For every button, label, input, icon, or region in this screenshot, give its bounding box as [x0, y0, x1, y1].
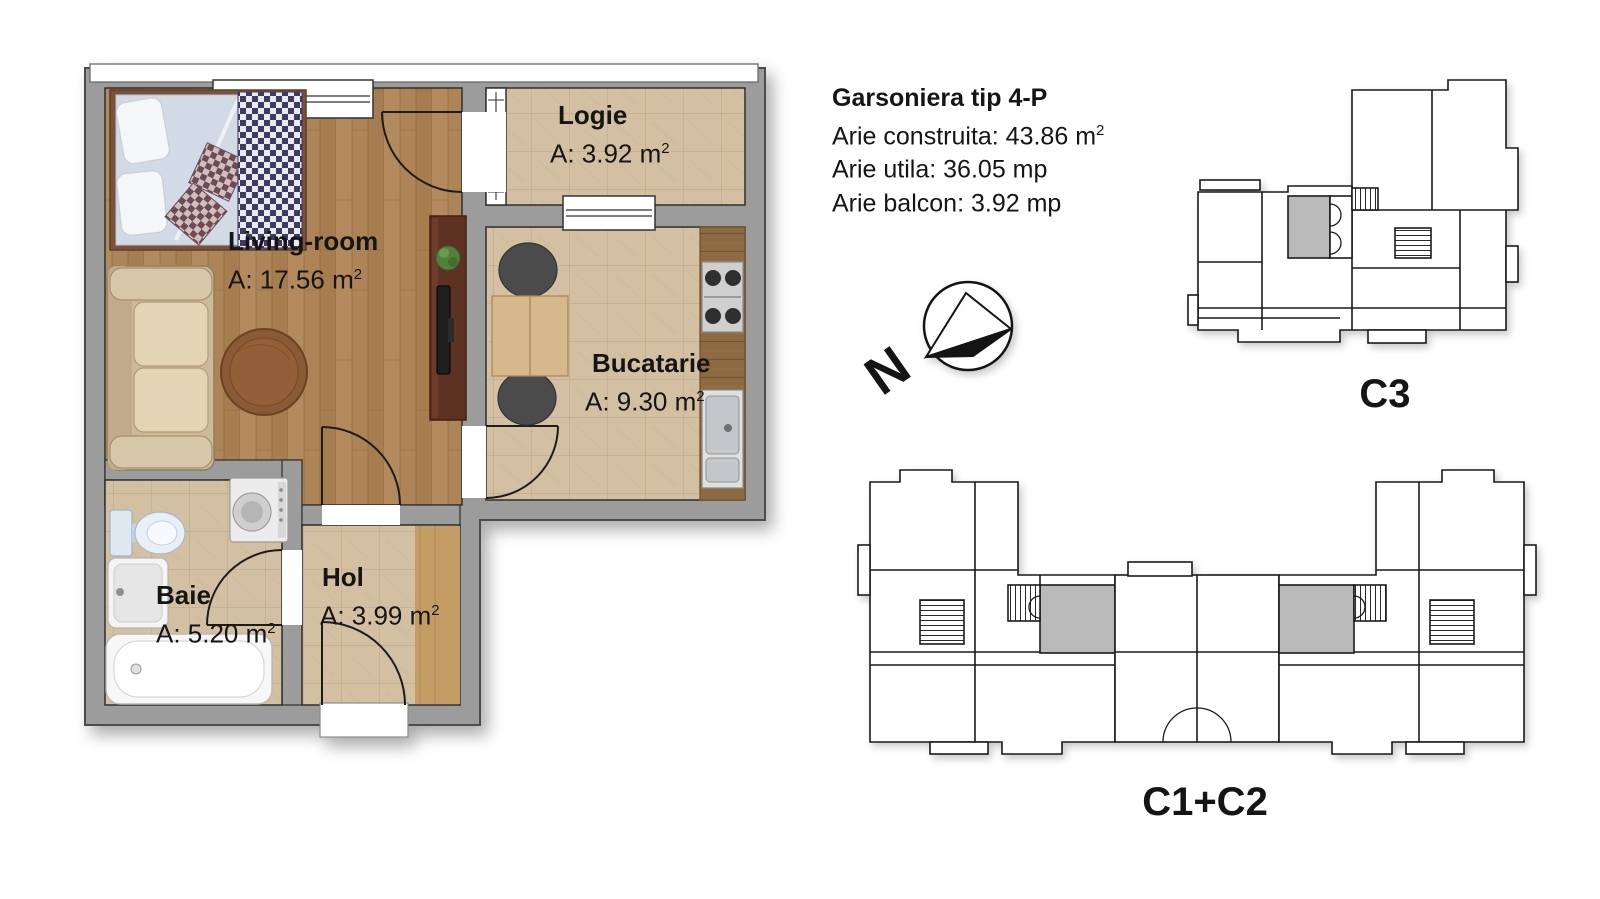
superscript: 2: [661, 140, 669, 157]
c2-stairs: [1354, 585, 1386, 621]
info-line: Arie construita: 43.86 m2: [832, 117, 1104, 150]
room-name: Logie: [558, 100, 670, 130]
room-area: A: 17.56 m2: [228, 260, 378, 295]
logie-door-opening: [462, 112, 506, 192]
room-area: A: 3.99 m2: [320, 596, 440, 631]
key-plan-c1c2: [858, 470, 1536, 754]
c3-stairs: [1352, 188, 1378, 210]
compass: [924, 282, 1012, 370]
c2-highlight-unit: [1279, 585, 1354, 653]
top-facade-band: [90, 64, 758, 82]
stove: [702, 262, 743, 332]
room-label-bucatarie: Bucatarie A: 9.30 m2: [585, 348, 711, 417]
living-hol-door-opening: [322, 505, 400, 525]
c1-stairs-2: [920, 600, 964, 644]
room-name: Bucatarie: [592, 348, 711, 378]
kitchen-table: [492, 296, 568, 376]
logie-bottom-window: [563, 196, 655, 230]
room-label-hol: Hol A: 3.99 m2: [320, 562, 440, 631]
entrance-opening: [320, 703, 408, 737]
superscript: 2: [267, 620, 275, 637]
c3-highlight-unit: [1288, 196, 1330, 258]
c2-stairs-2: [1430, 600, 1474, 644]
washing-machine: [230, 478, 288, 542]
superscript: 2: [431, 602, 439, 619]
info-line: Arie balcon: 3.92 mp: [832, 184, 1104, 217]
room-name: Living-room: [228, 226, 378, 256]
room-label-baie: Baie A: 5.20 m2: [156, 580, 276, 649]
room-area: A: 5.20 m2: [156, 614, 276, 649]
coffee-table: [221, 329, 307, 415]
sofa: [108, 266, 214, 470]
superscript: 2: [696, 388, 704, 405]
c1-stairs: [1008, 585, 1040, 621]
scene: [0, 0, 1600, 894]
plan-title: Garsoniera tip 4-P: [832, 84, 1104, 112]
room-label-logie: Logie A: 3.92 m2: [550, 100, 670, 169]
superscript: 2: [354, 266, 362, 283]
plant: [436, 246, 460, 270]
room-label-living: Living-room A: 17.56 m2: [228, 226, 378, 295]
c3-outline: [1198, 80, 1518, 342]
key-plan-label-c3: C3: [1340, 372, 1430, 417]
key-plan-c3: [1188, 80, 1518, 343]
key-plan-label-c1c2: C1+C2: [1100, 780, 1310, 825]
toilet: [110, 510, 185, 556]
superscript: 2: [1096, 122, 1104, 139]
room-area: A: 9.30 m2: [585, 382, 711, 417]
room-name: Baie: [156, 580, 276, 610]
baie-door-opening: [282, 550, 302, 625]
c1-highlight-unit: [1040, 585, 1115, 653]
kitchen-door-opening: [462, 426, 486, 498]
room-area: A: 3.92 m2: [550, 134, 670, 169]
info-line: Arie utila: 36.05 mp: [832, 150, 1104, 183]
info-block: Garsoniera tip 4-P Arie construita: 43.8…: [832, 84, 1104, 217]
c3-stairs-2: [1395, 228, 1431, 258]
tv-stand: [430, 216, 466, 420]
room-name: Hol: [322, 562, 440, 592]
